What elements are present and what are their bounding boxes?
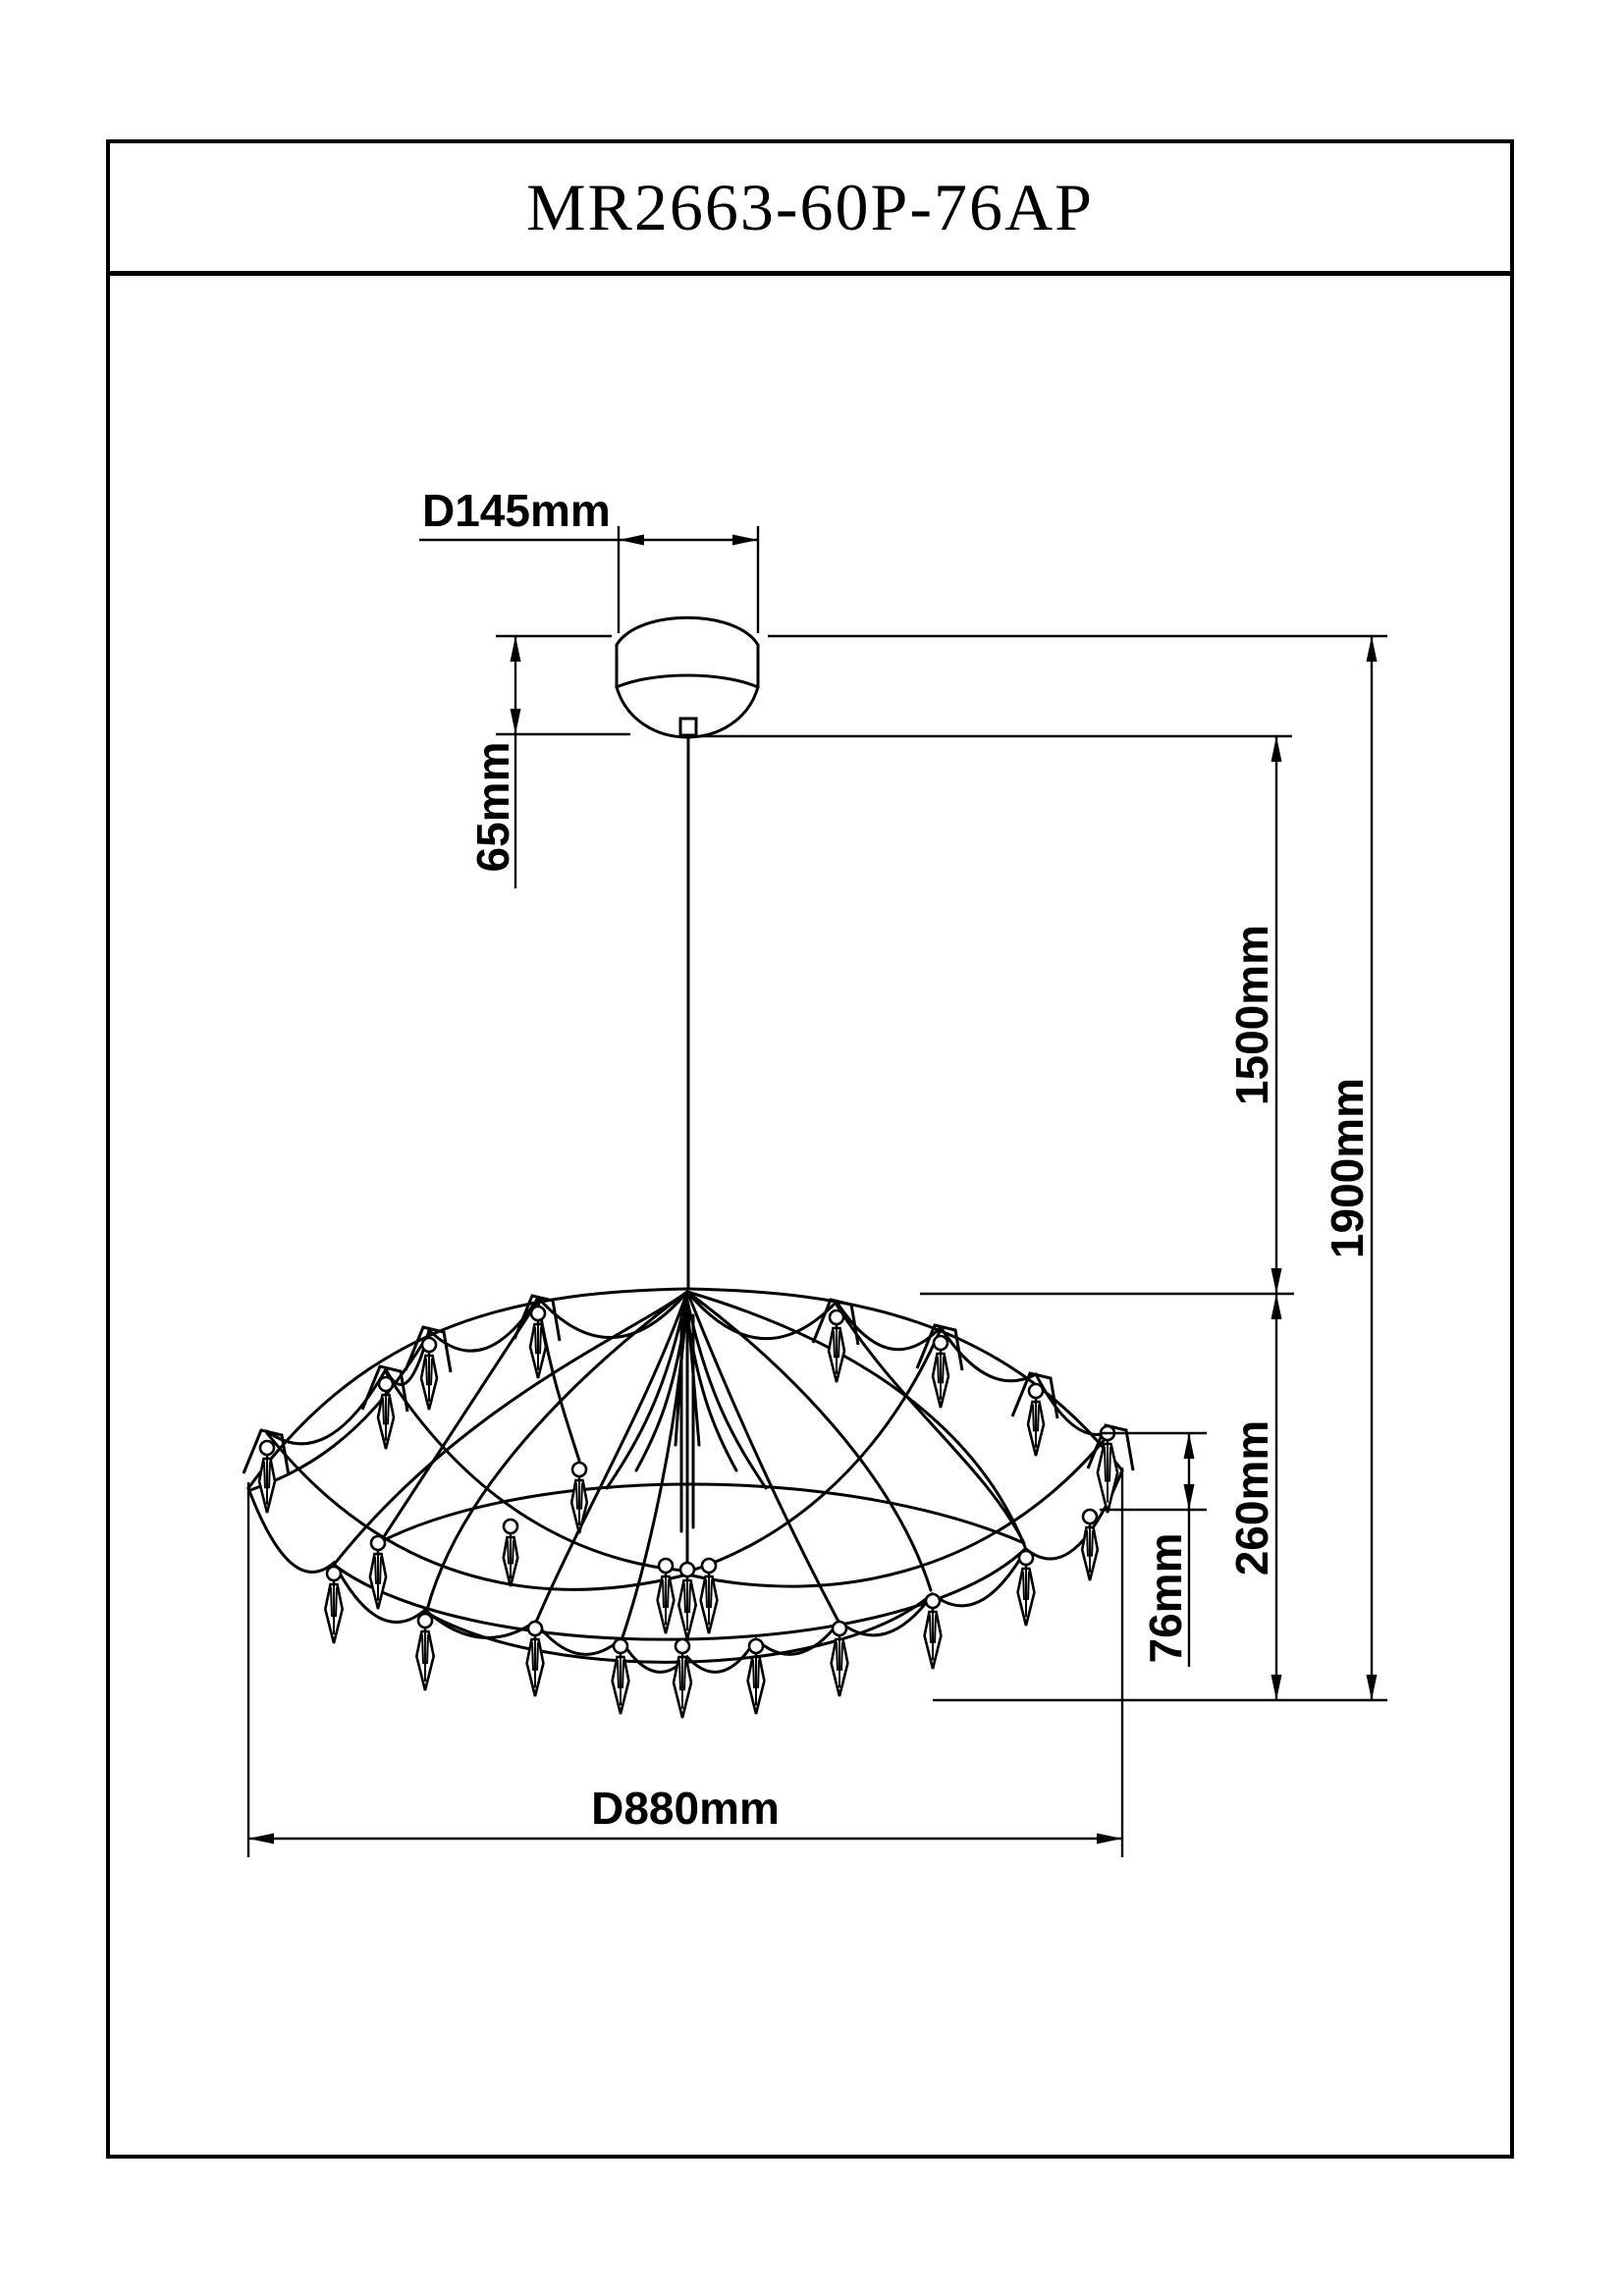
crystal-drop xyxy=(421,1338,437,1410)
crystal-drop xyxy=(748,1639,765,1714)
overall-drop-label: 1900mm xyxy=(1322,1078,1373,1258)
crystal-drop xyxy=(370,1536,386,1609)
cable-connector xyxy=(680,719,696,735)
suspension-length-label: 1500mm xyxy=(1226,925,1277,1105)
crystal-drop xyxy=(1028,1384,1044,1456)
dimension-drawing: D145mm 65mm 1500mm 260mm xyxy=(0,0,1623,2296)
crystal-drop xyxy=(829,1310,844,1382)
dimension-canopy-height: 65mm xyxy=(467,636,630,888)
crystal-drop xyxy=(527,1622,544,1696)
crystal-drop xyxy=(259,1441,275,1513)
crystal-drop xyxy=(571,1463,587,1533)
dimension-suspension-length: 1500mm xyxy=(699,736,1294,1700)
crystal-drop xyxy=(325,1567,342,1643)
fixture-diameter-label: D880mm xyxy=(591,1783,780,1834)
crystal-drop xyxy=(530,1307,546,1378)
dimension-fixture-height: 260mm xyxy=(1226,1294,1282,1700)
crystal-drop xyxy=(658,1559,675,1633)
crystal-drop xyxy=(504,1520,518,1586)
crystal-drop xyxy=(416,1614,433,1690)
canopy-diameter-label: D145mm xyxy=(422,485,611,536)
crystal-drop xyxy=(674,1639,691,1718)
spec-sheet-page: MR2663-60P-76AP xyxy=(0,0,1623,2296)
crystal-drop xyxy=(1018,1551,1035,1626)
pendant-drop-label: 76mm xyxy=(1140,1533,1191,1664)
crystal-drop xyxy=(832,1622,848,1696)
crystal-drop xyxy=(613,1639,629,1714)
crystal-drop xyxy=(678,1563,695,1639)
canopy-height-label: 65mm xyxy=(467,742,518,873)
crystal-drop xyxy=(1082,1510,1098,1580)
crystal-drop xyxy=(378,1377,394,1449)
chandelier-body xyxy=(243,1289,1133,1718)
ceiling-canopy xyxy=(617,617,758,737)
dimension-overall-drop: 1900mm xyxy=(768,636,1387,1700)
fixture-height-label: 260mm xyxy=(1226,1420,1277,1576)
crystal-drop xyxy=(925,1594,942,1669)
crystal-drop xyxy=(933,1336,948,1408)
crystal-drop xyxy=(701,1559,718,1633)
dimension-canopy-diameter: D145mm xyxy=(419,485,758,633)
